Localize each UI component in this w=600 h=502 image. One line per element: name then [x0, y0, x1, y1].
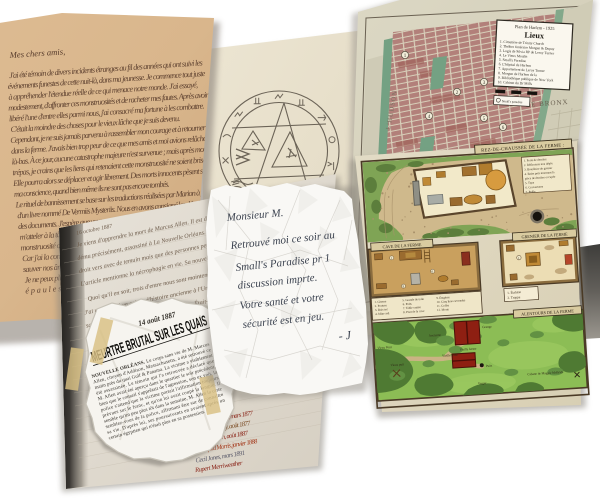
svg-text:Ancienne: Ancienne	[429, 333, 442, 338]
svg-text:1. Établon: 1. Établon	[507, 289, 522, 295]
svg-text:- J: - J	[338, 328, 352, 343]
svg-text:Lieux: Lieux	[524, 30, 544, 40]
svg-text:7. Poêle: 7. Poêle	[526, 189, 537, 194]
svg-text:Grange: Grange	[482, 325, 492, 330]
svg-text:2. Trappe: 2. Trappe	[507, 295, 521, 300]
svg-text:Verger: Verger	[478, 381, 488, 386]
svg-text:Puits: Puits	[486, 364, 493, 368]
svg-text:12. Morts: 12. Morts	[437, 307, 450, 312]
